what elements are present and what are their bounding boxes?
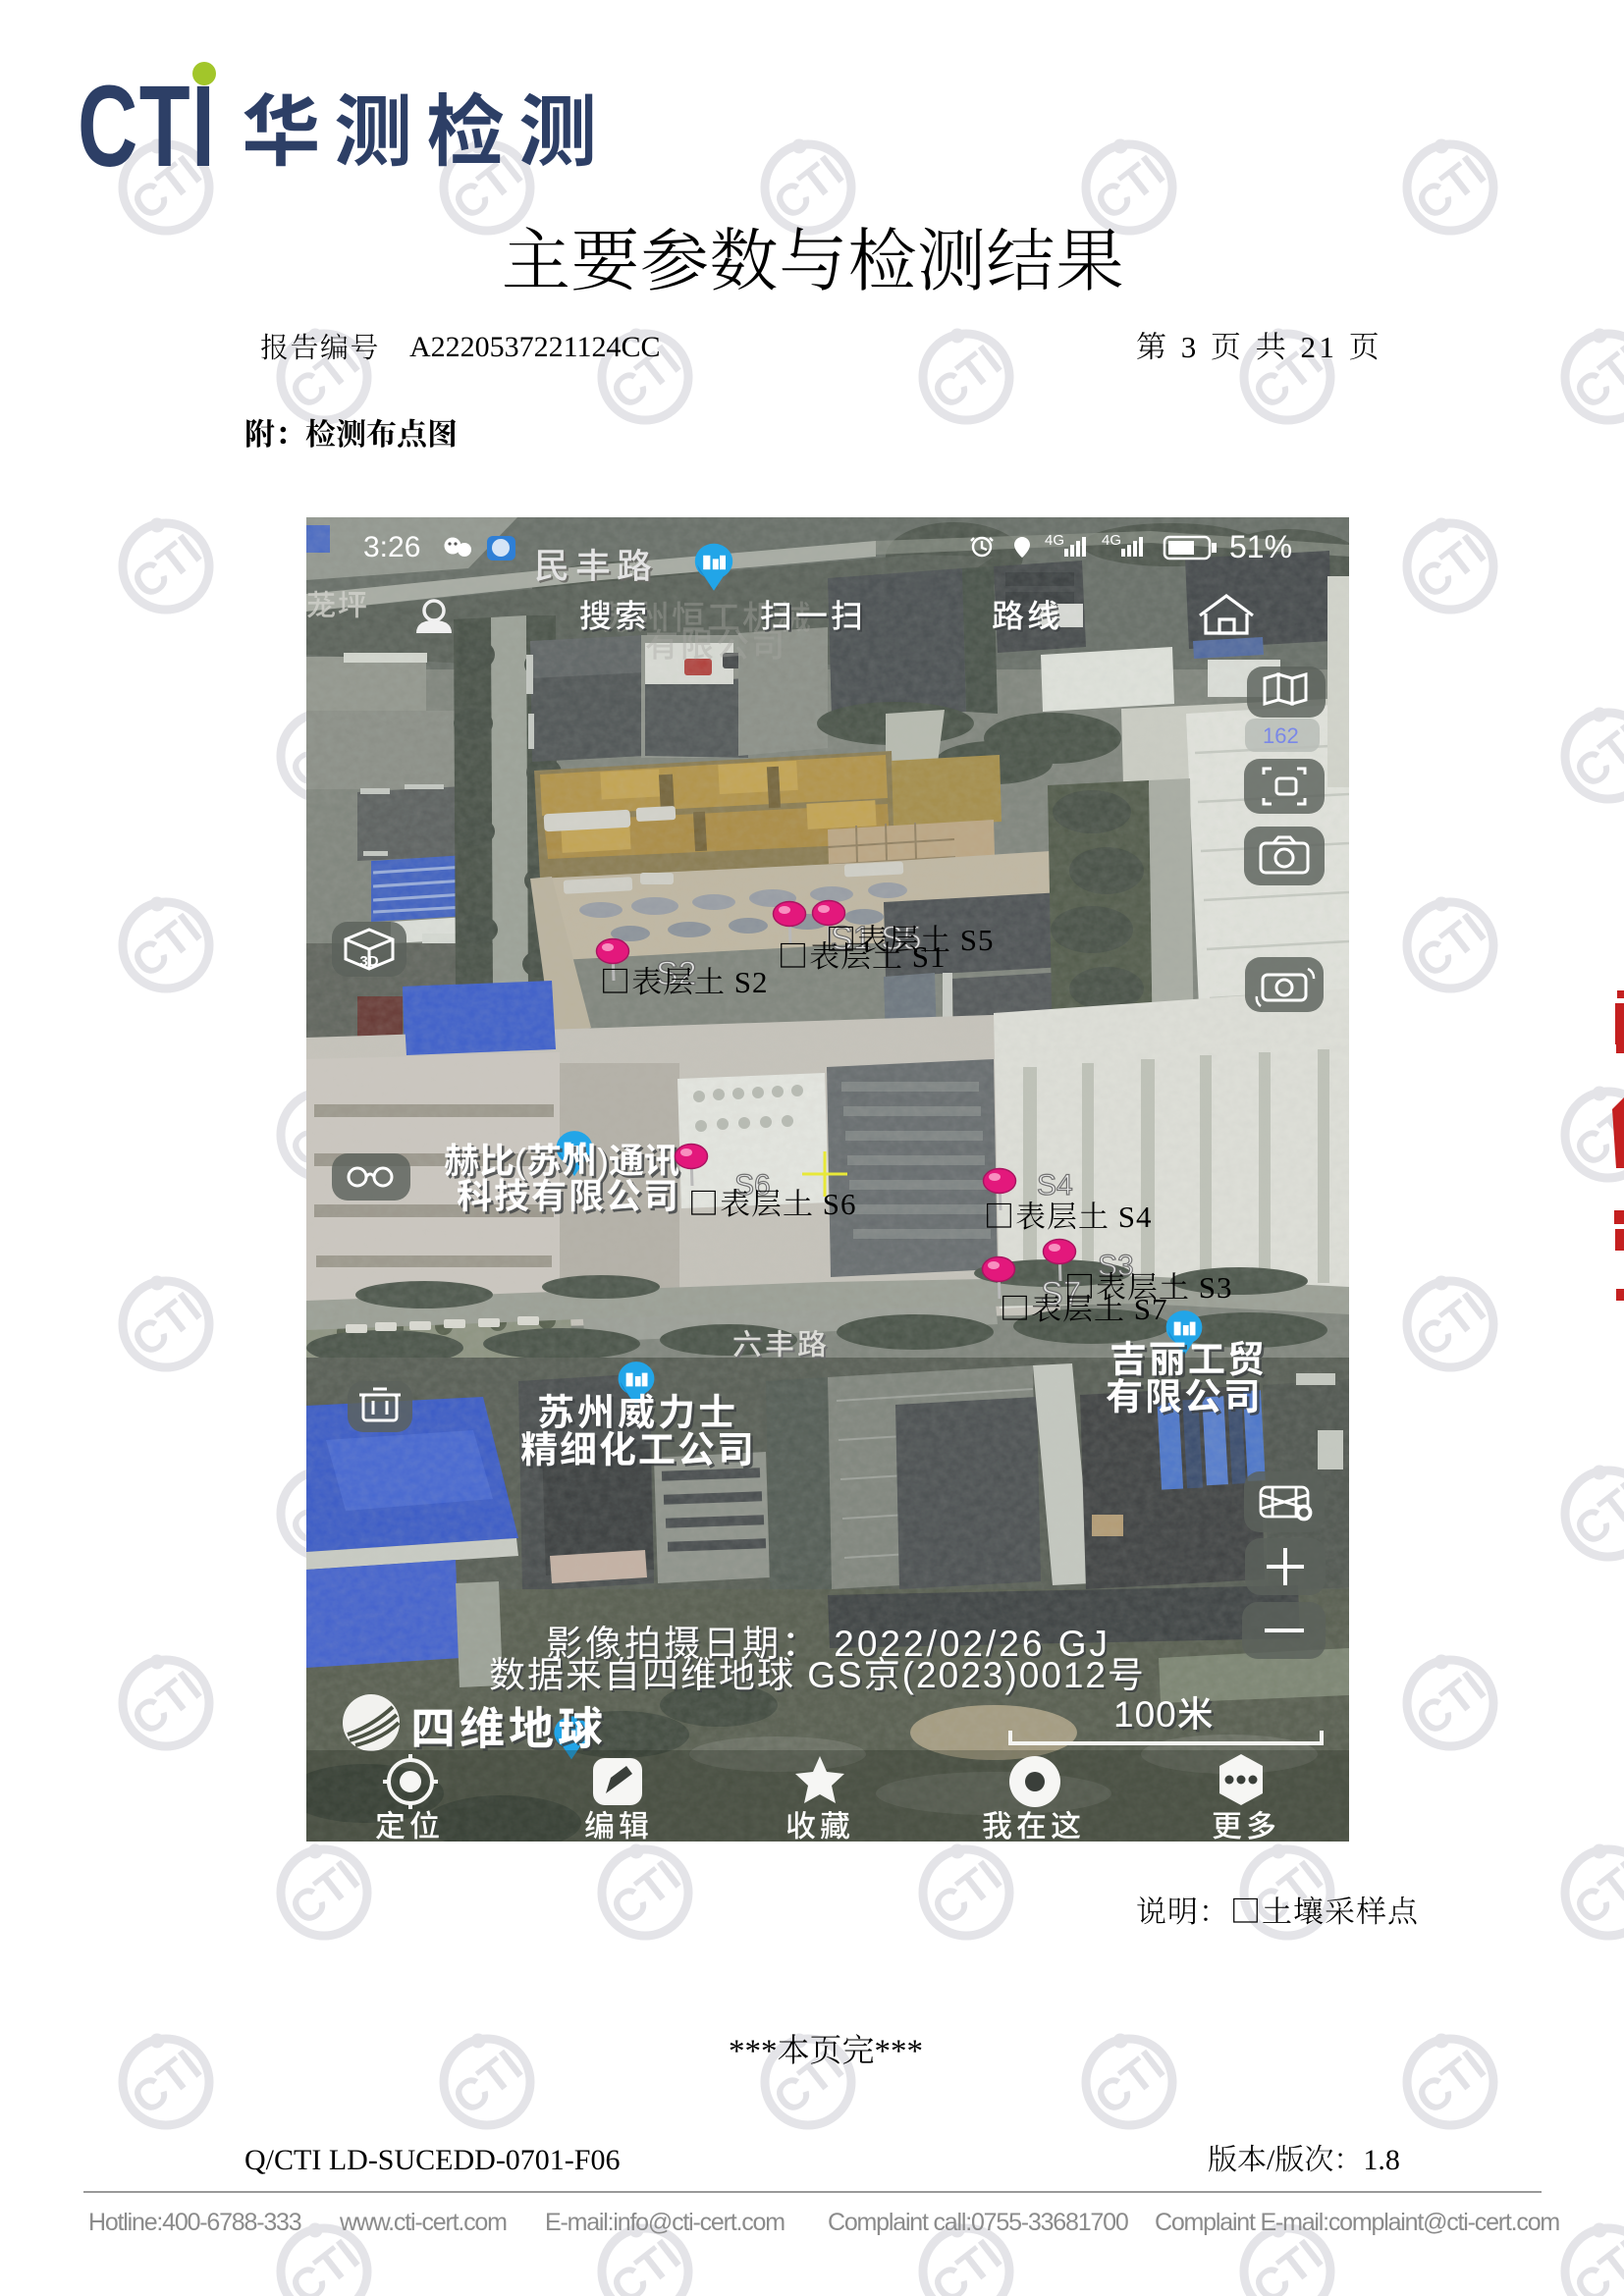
svg-text:162: 162 (1263, 723, 1299, 748)
svg-text:3:26: 3:26 (363, 531, 420, 563)
svg-text:1.8: 1.8 (1363, 2144, 1400, 2176)
svg-text:GS: GS (807, 1655, 863, 1695)
svg-text:4G: 4G (1102, 532, 1121, 549)
svg-text:E-mail:info@cti-cert.com: E-mail:info@cti-cert.com (545, 2209, 785, 2236)
svg-text:***: *** (729, 2034, 778, 2069)
svg-text:(: ( (514, 1141, 526, 1181)
svg-text:): ) (597, 1141, 609, 1181)
svg-text:21: 21 (1301, 330, 1338, 364)
svg-text:Q/CTI LD-SUCEDD-0701-F06: Q/CTI LD-SUCEDD-0701-F06 (244, 2144, 621, 2176)
svg-text:4G: 4G (1045, 532, 1064, 549)
svg-text:S6: S6 (823, 1187, 857, 1221)
svg-text:Complaint E-mail:complaint@cti: Complaint E-mail:complaint@cti-cert.com (1155, 2209, 1559, 2236)
svg-text:S4: S4 (1037, 1169, 1073, 1201)
svg-text:(2023)0012: (2023)0012 (902, 1655, 1108, 1695)
svg-text:S7: S7 (1134, 1292, 1168, 1326)
svg-text:Hotline:400-6788-333: Hotline:400-6788-333 (88, 2209, 301, 2236)
svg-text:www.cti-cert.com: www.cti-cert.com (339, 2209, 507, 2236)
svg-text:S1: S1 (912, 939, 947, 974)
svg-text:S4: S4 (1118, 1200, 1153, 1234)
svg-text:S5: S5 (960, 923, 995, 957)
svg-text:S3: S3 (1098, 1250, 1134, 1282)
svg-text:Complaint call:0755-33681700: Complaint call:0755-33681700 (828, 2209, 1128, 2236)
svg-text:***: *** (875, 2034, 924, 2069)
svg-text:51%: 51% (1229, 529, 1292, 564)
svg-text:3: 3 (1181, 330, 1200, 364)
svg-text:S2: S2 (656, 955, 697, 992)
svg-text:S2: S2 (734, 965, 769, 999)
svg-text:S3: S3 (1199, 1270, 1233, 1305)
svg-text:S1: S1 (831, 920, 872, 957)
svg-text:3D: 3D (359, 953, 378, 970)
svg-text:/: / (1267, 2144, 1275, 2176)
svg-text:100: 100 (1113, 1694, 1177, 1735)
svg-text:A2220537221124CC: A2220537221124CC (409, 331, 661, 363)
